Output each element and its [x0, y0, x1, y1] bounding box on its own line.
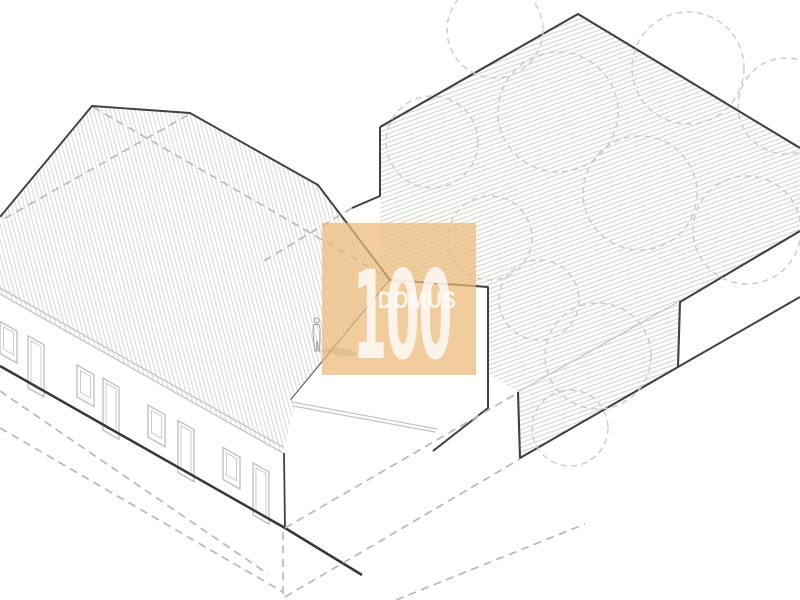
left-building [0, 106, 390, 575]
garden-left-notch-outline [352, 127, 380, 208]
podium-right-wall-base [678, 297, 800, 367]
site-dashed-to-podium-base [285, 459, 520, 597]
facade-corner-edge [284, 453, 285, 528]
site-dashed-bottom-right [396, 524, 585, 600]
person-shadow-small [321, 349, 333, 354]
architectural-axonometric-page: 100 DOMUS [0, 0, 800, 600]
site-axonometric-drawing [0, 0, 800, 600]
